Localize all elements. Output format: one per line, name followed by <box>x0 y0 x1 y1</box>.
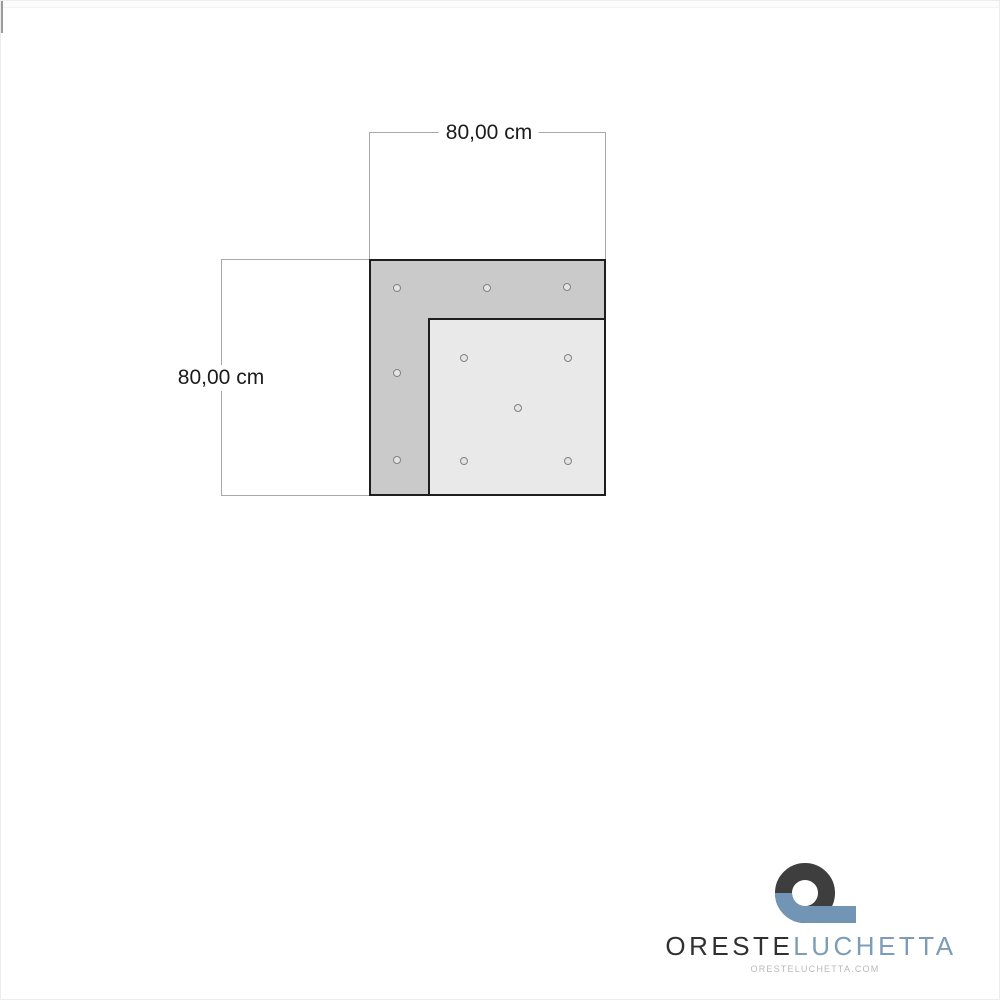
brand-logo-icon <box>758 858 863 930</box>
height-extension-line-bottom <box>221 495 369 496</box>
mounting-hole <box>563 283 571 291</box>
height-extension-line-top <box>221 259 369 260</box>
mounting-hole <box>564 457 572 465</box>
left-edge-artifact <box>1 1 3 33</box>
mounting-hole <box>393 456 401 464</box>
mounting-hole <box>393 369 401 377</box>
width-extension-line-right <box>605 132 606 259</box>
height-dimension-label: 80,00 cm <box>171 365 271 391</box>
mounting-hole <box>514 404 522 412</box>
brand-name-secondary: LUCHETTA <box>793 931 956 961</box>
brand-name-primary: ORESTE <box>665 931 793 961</box>
mounting-hole <box>393 284 401 292</box>
logo-tail-bar <box>805 906 856 923</box>
top-edge-strip <box>1 1 999 8</box>
logo-ring-blue-quarter <box>784 893 806 915</box>
mounting-hole <box>483 284 491 292</box>
width-dimension-label: 80,00 cm <box>439 120 539 146</box>
mounting-hole <box>460 457 468 465</box>
width-extension-line-left <box>369 132 370 259</box>
brand-wordmark: ORESTELUCHETTA <box>651 931 971 961</box>
brand-website-text: ORESTELUCHETTA.COM <box>665 963 965 975</box>
mounting-hole <box>564 354 572 362</box>
diagram-canvas: 80,00 cm 80,00 cm ORESTELUCHETTA ORESTEL… <box>0 0 1000 1000</box>
mounting-hole <box>460 354 468 362</box>
